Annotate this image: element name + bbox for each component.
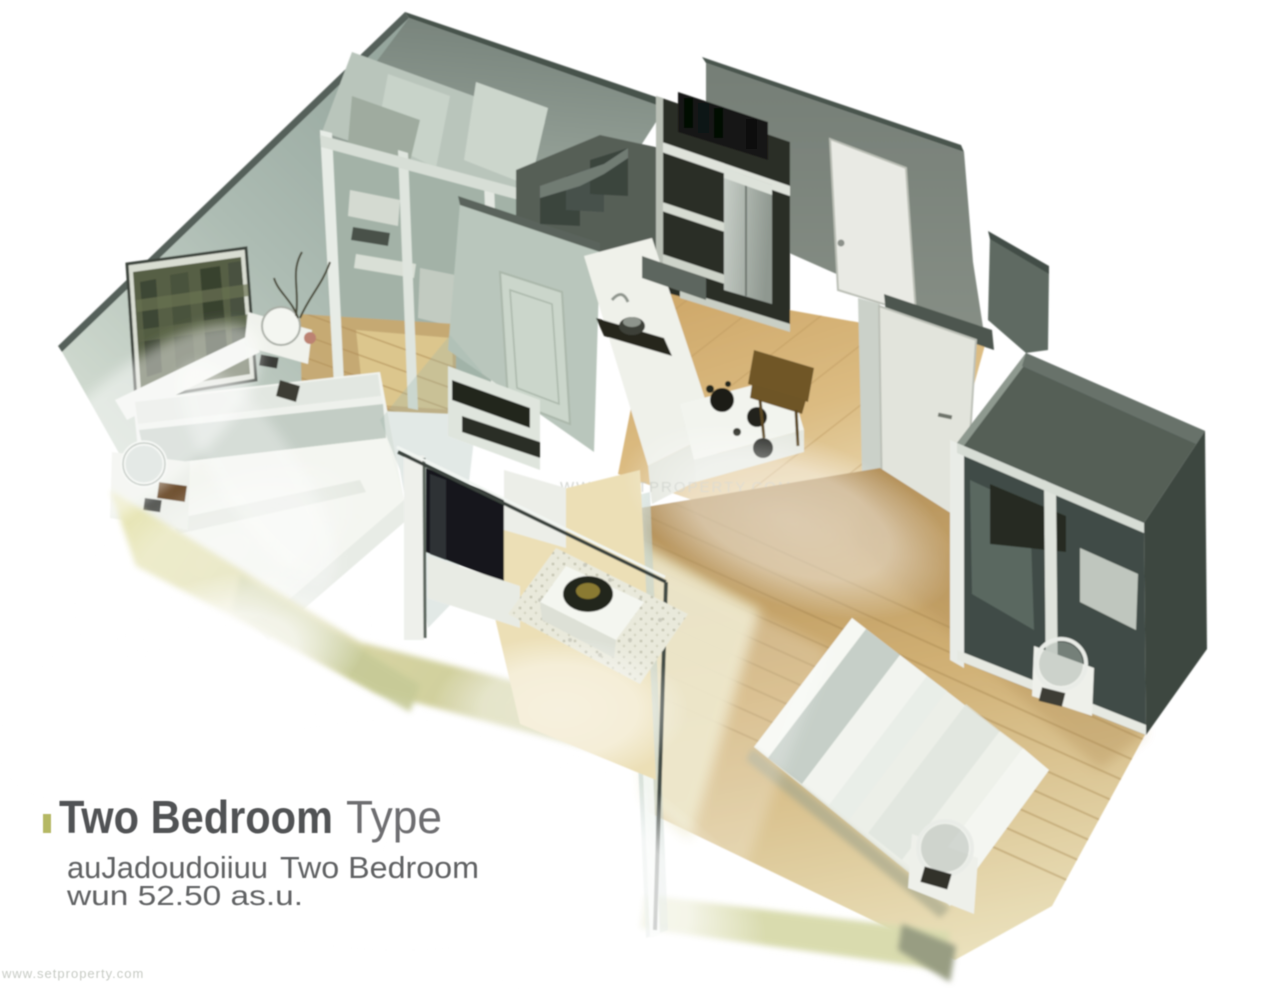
svg-text:www.setproperty.com: www.setproperty.com	[1, 966, 144, 981]
svg-text:Type: Type	[346, 791, 442, 843]
svg-text:Two Bedroom: Two Bedroom	[280, 850, 479, 885]
svg-text:Two Bedroom: Two Bedroom	[59, 791, 333, 843]
svg-text:wun 52.50 as.u.: wun 52.50 as.u.	[66, 880, 303, 911]
